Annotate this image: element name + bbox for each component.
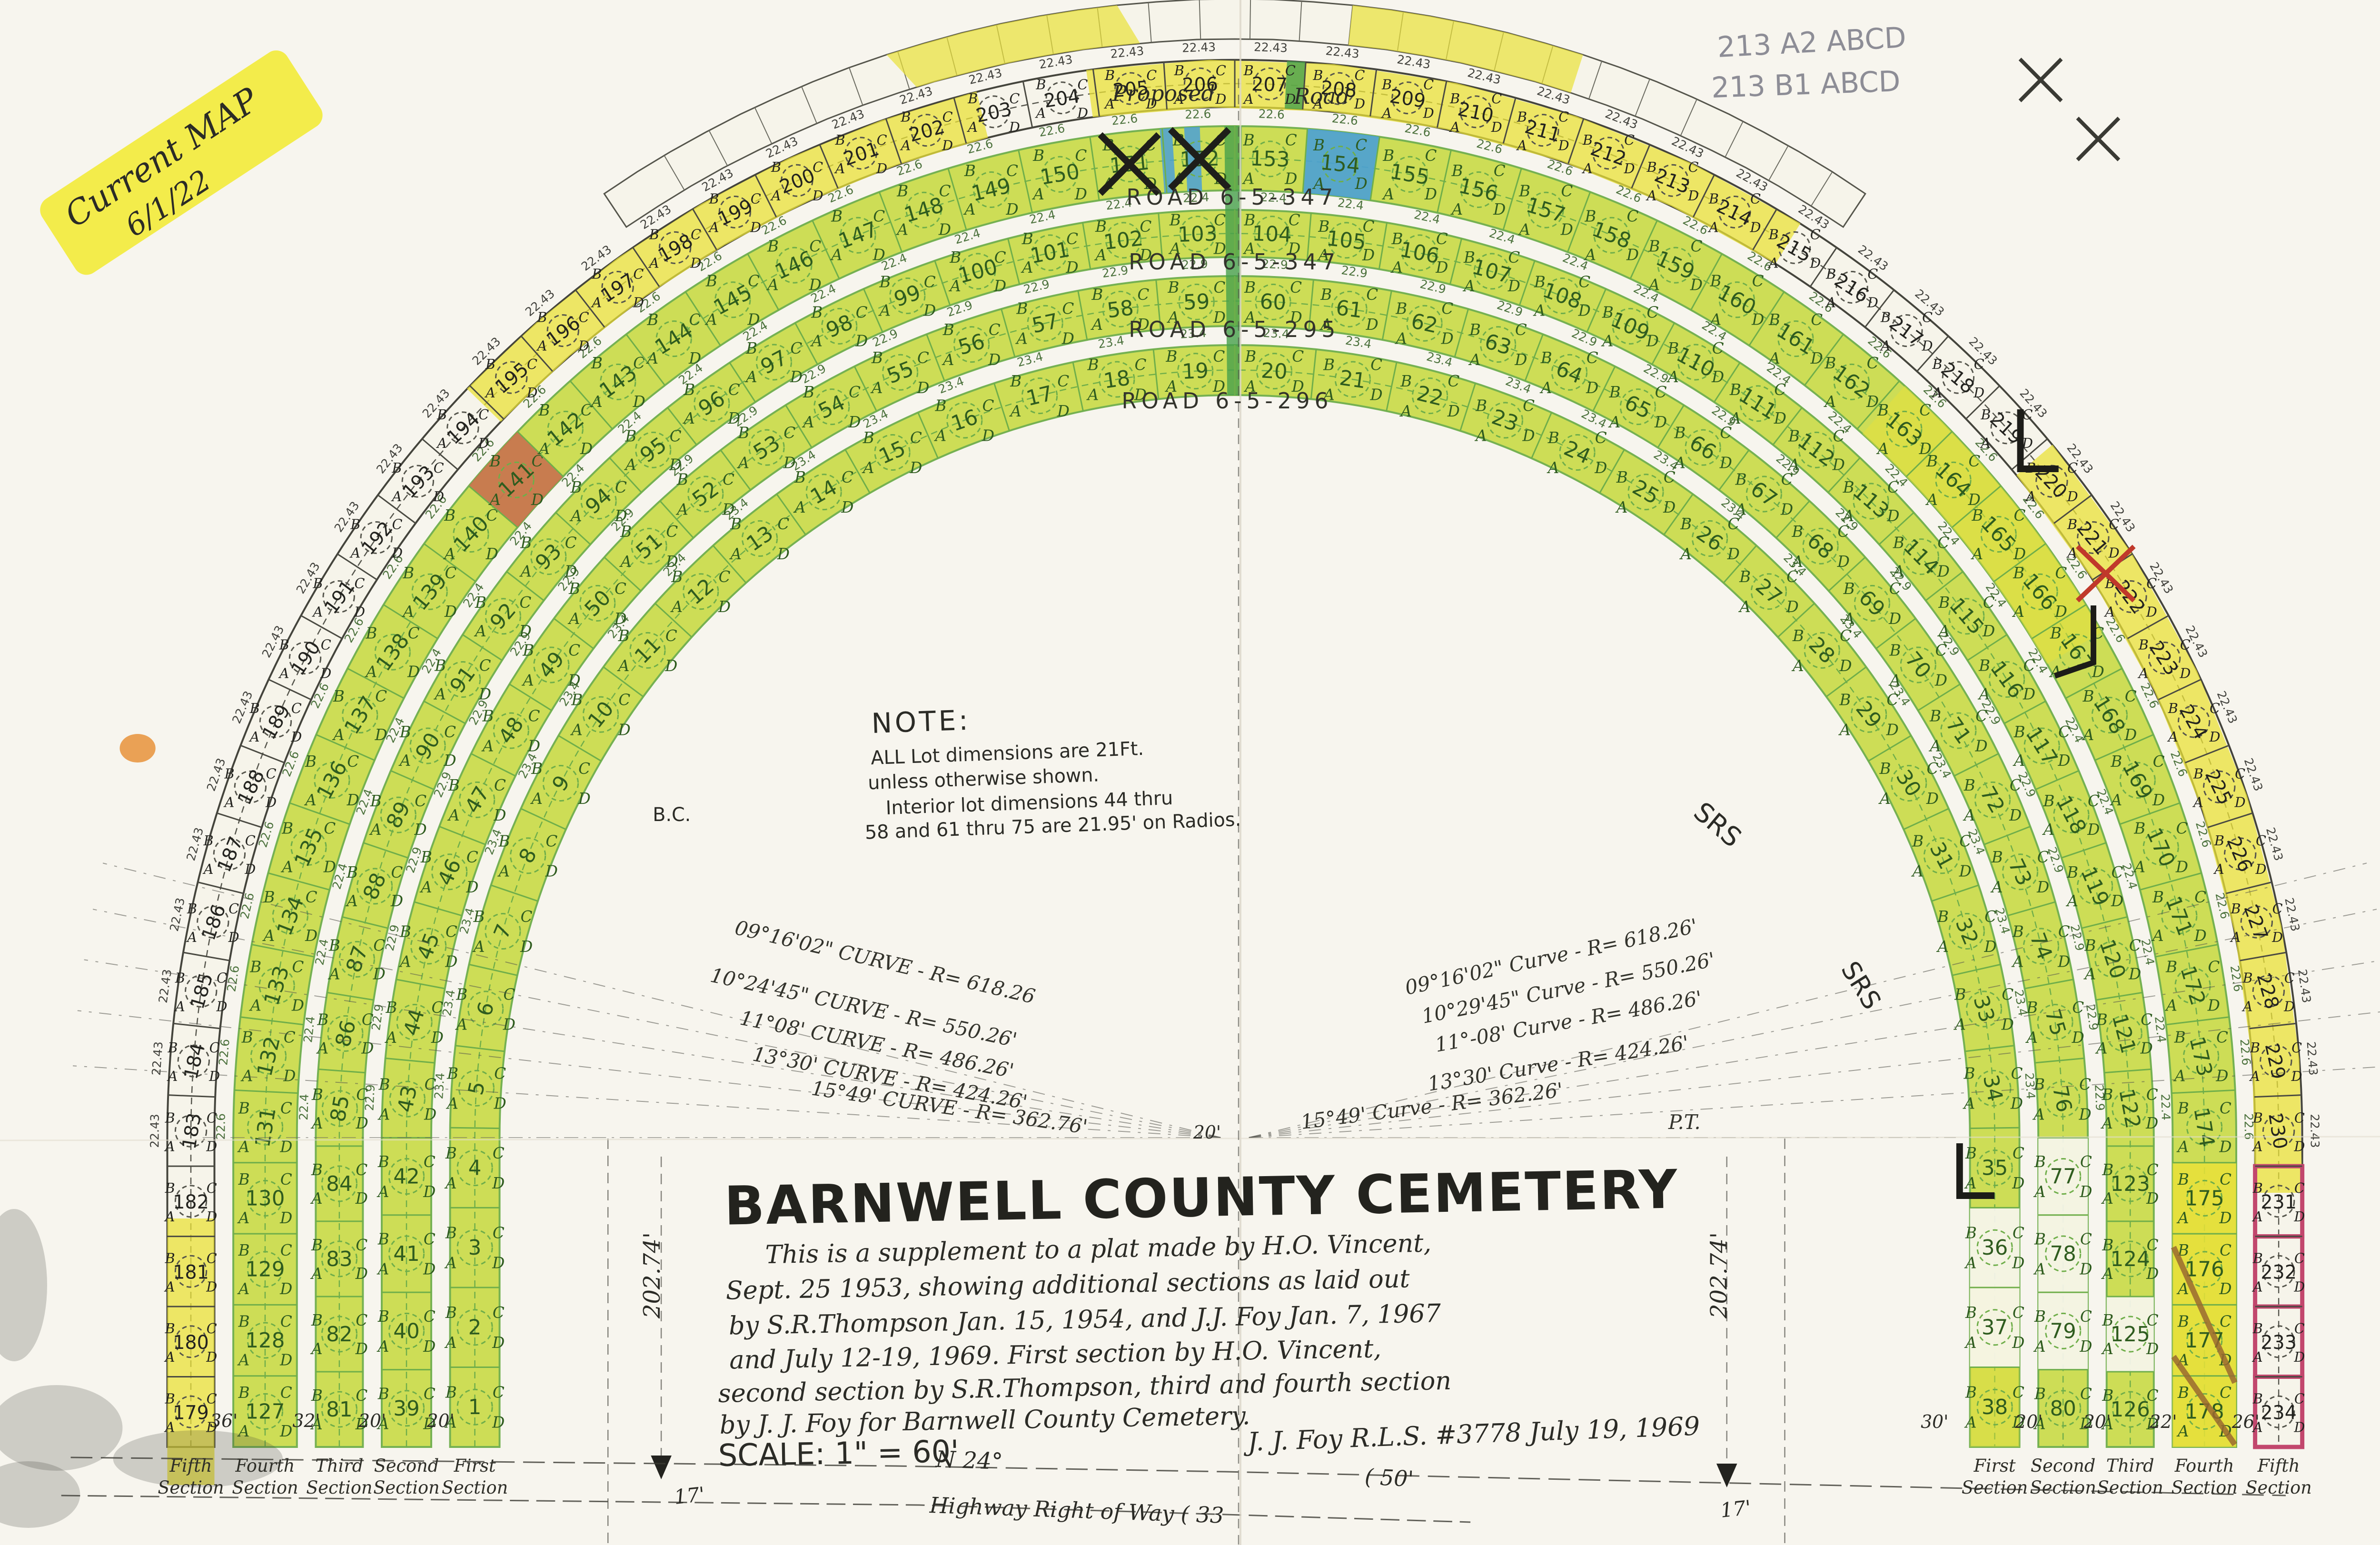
quadrant-letter: D	[492, 1414, 505, 1432]
quadrant-letter: C	[479, 656, 491, 674]
quadrant-letter: B	[311, 1387, 323, 1405]
quadrant-letter: D	[486, 545, 498, 563]
quadrant-letter: D	[1005, 200, 1018, 218]
quadrant-letter: B	[2177, 1170, 2189, 1188]
quadrant-letter: D	[2283, 998, 2295, 1014]
quadrant-letter: B	[2012, 922, 2024, 941]
quadrant-letter: D	[1983, 938, 1996, 956]
quadrant-letter: D	[1624, 160, 1635, 177]
quadrant-letter: D	[1215, 91, 1226, 107]
quadrant-letter: A	[1031, 185, 1044, 203]
quadrant-letter: B	[2242, 970, 2253, 986]
lot-20: 20	[1260, 358, 1288, 384]
quadrant-letter: C	[356, 1311, 367, 1329]
quadrant-letter: B	[1016, 300, 1028, 318]
quadrant-letter: A	[2082, 726, 2094, 744]
quadrant-letter: A	[377, 1183, 389, 1201]
quadrant-letter: A	[895, 221, 908, 239]
quadrant-letter: B	[1475, 396, 1487, 415]
lot-42: 42	[393, 1164, 419, 1188]
note-heading: NOTE:	[871, 703, 972, 740]
lot-1: 1	[468, 1395, 482, 1419]
quadrant-letter: B	[2050, 624, 2062, 643]
quadrant-letter: C	[877, 132, 887, 148]
quadrant-letter: A	[1035, 105, 1046, 121]
quadrant-letter: C	[2147, 1236, 2159, 1254]
quadrant-letter: A	[1964, 1334, 1977, 1352]
quadrant-letter: C	[2220, 1099, 2231, 1117]
quadrant-letter: B	[2101, 1086, 2113, 1104]
quadrant-letter: C	[1370, 356, 1382, 374]
quadrant-letter: A	[963, 200, 976, 218]
quadrant-letter: A	[830, 246, 843, 264]
quadrant-letter: A	[590, 393, 603, 411]
lot-233: 233	[2261, 1332, 2297, 1354]
quadrant-letter: A	[1964, 1414, 1977, 1432]
dim-202-left: 202.74'	[639, 1232, 665, 1319]
quadrant-letter: C	[2147, 1387, 2159, 1405]
quadrant-letter: D	[1975, 737, 1988, 755]
quadrant-letter: D	[1926, 790, 1939, 808]
quadrant-letter: B	[1582, 132, 1593, 148]
quadrant-letter: B	[1963, 1065, 1975, 1083]
quadrant-letter: A	[2011, 952, 2024, 971]
quadrant-letter: D	[1982, 622, 1995, 640]
quadrant-letter: B	[2177, 1384, 2189, 1402]
section-label-right: Section	[2245, 1477, 2311, 1498]
quadrant-letter: A	[1462, 277, 1475, 295]
quadrant-letter: B	[2174, 1028, 2186, 1046]
quadrant-letter: A	[1709, 310, 1722, 328]
quadrant-letter: A	[1533, 301, 1546, 319]
quadrant-letter: C	[618, 691, 630, 709]
quadrant-letter: B	[2034, 1230, 2046, 1248]
quadrant-letter: B	[1616, 468, 1628, 486]
quadrant-letter: A	[2033, 1183, 2046, 1201]
lot-125: 125	[2111, 1322, 2150, 1347]
fifty-ft-label: ( 50'	[1364, 1464, 1414, 1492]
srs-label-1: SRS	[1688, 796, 1747, 854]
title-line-2: Sept. 25 1953, showing additional sectio…	[725, 1264, 1410, 1306]
quadrant-letter: D	[1074, 185, 1087, 203]
lot-175: 175	[2185, 1186, 2224, 1210]
quadrant-letter: A	[398, 952, 411, 971]
quadrant-letter: C	[245, 832, 256, 849]
quadrant-letter: A	[708, 219, 719, 235]
quadrant-letter: C	[291, 700, 302, 716]
quadrant-letter: A	[237, 1351, 250, 1369]
quadrant-letter: A	[1707, 219, 1719, 235]
quadrant-letter: C	[1355, 136, 1367, 154]
quadrant-letter: C	[391, 863, 403, 881]
quadrant-letter: D	[2146, 604, 2157, 620]
quadrant-letter: D	[614, 610, 626, 628]
lot-232: 232	[2261, 1261, 2297, 1283]
quadrant-letter: A	[704, 310, 717, 328]
quadrant-letter: C	[994, 248, 1006, 267]
bearing-label: N 24°	[935, 1446, 1003, 1475]
quadrant-letter: A	[2249, 1068, 2260, 1084]
quadrant-letter: B	[831, 208, 843, 226]
quadrant-letter: A	[2066, 545, 2077, 561]
lot-207: 207	[1251, 73, 1288, 96]
quadrant-letter: D	[2219, 1280, 2231, 1298]
quadrant-letter: C	[1285, 131, 1297, 149]
quadrant-letter: D	[873, 246, 885, 264]
quadrant-letter: A	[834, 160, 845, 177]
quadrant-letter: C	[362, 1010, 374, 1029]
quadrant-letter: D	[2146, 1340, 2159, 1358]
quadrant-letter: B	[263, 888, 275, 906]
quadrant-letter: B	[1879, 760, 1891, 778]
quadrant-letter: C	[728, 381, 740, 399]
quadrant-letter: B	[165, 1320, 175, 1337]
quadrant-letter: D	[1558, 138, 1569, 154]
quadrant-letter: C	[545, 832, 557, 850]
quadrant-letter: D	[1809, 255, 1821, 271]
quadrant-letter: B	[402, 564, 414, 582]
lot-dimension: 22.43	[167, 896, 188, 932]
quadrant-letter: D	[2179, 665, 2191, 681]
quadrant-letter: A	[862, 459, 874, 477]
quadrant-letter: C	[424, 1230, 436, 1248]
quadrant-letter: B	[1926, 452, 1938, 470]
quadrant-letter: D	[2078, 1106, 2091, 1124]
quadrant-letter: A	[398, 752, 411, 770]
quadrant-letter: A	[2176, 1138, 2189, 1156]
quadrant-letter: B	[238, 1384, 250, 1402]
quadrant-letter: B	[1978, 656, 1990, 674]
quadrant-letter: C	[207, 1390, 217, 1406]
quadrant-letter: D	[2087, 821, 2100, 839]
quadrant-letter: A	[793, 498, 806, 516]
quadrant-letter: D	[841, 498, 853, 516]
section-label-left: First	[453, 1456, 496, 1476]
quadrant-letter: B	[1708, 190, 1719, 207]
quadrant-letter: D	[1061, 330, 1074, 348]
quadrant-letter: D	[492, 1174, 505, 1192]
quadrant-letter: C	[942, 109, 953, 125]
quadrant-letter: B	[1609, 383, 1621, 401]
quadrant-letter: A	[646, 349, 659, 367]
quadrant-letter: B	[2177, 1099, 2189, 1117]
quadrant-letter: B	[2110, 753, 2122, 771]
quadrant-letter: A	[2167, 729, 2178, 745]
quadrant-letter: D	[279, 1422, 292, 1440]
quadrant-letter: C	[813, 159, 823, 175]
section-label-left: Section	[442, 1477, 508, 1498]
quadrant-letter: C	[2013, 1224, 2024, 1242]
seventeen-ft-right: 17'	[1719, 1495, 1752, 1522]
lot-dimension: 22.43	[2263, 826, 2286, 862]
quadrant-letter: A	[521, 671, 534, 689]
quadrant-letter: B	[1320, 286, 1332, 304]
quadrant-letter: B	[238, 1312, 250, 1330]
quadrant-letter: D	[2271, 929, 2283, 945]
quadrant-letter: A	[1787, 456, 1800, 474]
quadrant-letter: D	[2079, 1260, 2092, 1278]
quadrant-letter: B	[2250, 1040, 2260, 1056]
lot-181: 181	[173, 1261, 209, 1283]
quadrant-letter: A	[802, 413, 814, 431]
quadrant-letter: D	[347, 791, 359, 809]
quadrant-letter: D	[783, 454, 796, 472]
quadrant-letter: C	[666, 523, 678, 541]
quadrant-letter: A	[1448, 119, 1460, 135]
quadrant-letter: A	[369, 821, 382, 839]
quadrant-letter: D	[1711, 368, 1724, 386]
quadrant-letter: A	[304, 791, 317, 809]
quadrant-letter: D	[578, 790, 591, 808]
lot-234: 234	[2261, 1402, 2297, 1424]
quadrant-letter: B	[1174, 62, 1184, 79]
quadrant-letter: D	[493, 806, 506, 824]
quadrant-letter: C	[2153, 753, 2165, 771]
map-title: BARNWELL COUNTY CEMETERY	[724, 1159, 1679, 1238]
quadrant-letter: A	[310, 1189, 323, 1208]
road-6-5-296: ROAD 6-5-296	[1121, 388, 1333, 414]
quadrant-letter: A	[2192, 794, 2203, 810]
quadrant-letter: B	[2034, 1153, 2046, 1171]
lot-127: 127	[245, 1399, 285, 1424]
quadrant-letter: A	[570, 721, 583, 739]
quadrant-letter: A	[519, 562, 532, 580]
quadrant-letter: D	[938, 221, 951, 239]
quadrant-letter: D	[478, 435, 489, 451]
quadrant-letter: A	[1963, 806, 1975, 824]
quadrant-letter: A	[202, 861, 214, 877]
quadrant-letter: B	[1395, 300, 1407, 318]
quadrant-letter: A	[223, 794, 235, 810]
quadrant-letter: D	[722, 500, 734, 518]
quadrant-letter: B	[2152, 888, 2164, 906]
quadrant-letter: B	[1980, 406, 1991, 423]
quadrant-letter: D	[727, 409, 740, 427]
quadrant-letter: D	[1959, 862, 1972, 880]
quadrant-letter: A	[2042, 821, 2055, 839]
quadrant-letter: D	[1491, 119, 1502, 135]
quadrant-letter: C	[1752, 272, 1764, 290]
quadrant-letter: D	[492, 1334, 505, 1352]
quadrant-letter: D	[2010, 1095, 2023, 1113]
quadrant-letter: A	[1879, 337, 1891, 354]
quadrant-letter: A	[481, 737, 494, 755]
quadrant-letter: A	[1450, 200, 1463, 218]
orange-patch	[119, 734, 155, 763]
quadrant-letter: B	[1648, 238, 1660, 256]
quadrant-letter: C	[494, 1065, 506, 1083]
quadrant-letter: A	[619, 553, 632, 571]
quadrant-letter: D	[1867, 294, 1878, 310]
quadrant-letter: B	[2066, 863, 2078, 881]
quadrant-letter: B	[445, 1224, 457, 1242]
quadrant-letter: C	[347, 753, 359, 771]
quadrant-letter: D	[2145, 1114, 2158, 1132]
quadrant-letter: A	[1399, 402, 1412, 420]
quadrant-letter: C	[1135, 356, 1147, 374]
quadrant-letter: A	[447, 806, 460, 824]
lot-104: 104	[1252, 221, 1292, 247]
section-label-right: Second	[2031, 1456, 2095, 1476]
quadrant-letter: A	[419, 878, 432, 896]
quadrant-letter: A	[472, 938, 485, 956]
quadrant-letter: A	[436, 435, 447, 451]
section-label-left: Fifth	[169, 1456, 212, 1476]
quadrant-letter: C	[519, 594, 531, 612]
quadrant-letter: A	[900, 138, 911, 154]
quadrant-letter: B	[591, 354, 603, 372]
quadrant-letter: C	[1006, 162, 1018, 180]
lot-dimension: 22.43	[1325, 44, 1360, 61]
quadrant-letter: B	[1674, 424, 1686, 442]
quadrant-letter: A	[332, 726, 345, 744]
quadrant-letter: A	[590, 294, 602, 310]
quadrant-letter: C	[2079, 1076, 2091, 1094]
quadrant-letter: B	[1382, 147, 1394, 165]
quadrant-letter: C	[356, 1161, 367, 1179]
quadrant-letter: B	[1534, 273, 1546, 291]
lot-dimension: 22.43	[1110, 44, 1144, 61]
quadrant-letter: B	[964, 162, 976, 180]
lot-4: 4	[468, 1156, 482, 1180]
quadrant-letter: B	[1680, 515, 1692, 533]
quadrant-letter: D	[633, 393, 645, 411]
lot-dimension: 22.6	[1258, 107, 1285, 121]
vertex-20ft: 20'	[1193, 1122, 1221, 1143]
quadrant-letter: B	[365, 624, 377, 643]
quadrant-letter: C	[579, 309, 589, 325]
quadrant-letter: D	[2023, 685, 2035, 703]
quadrant-letter: C	[1523, 396, 1535, 415]
quadrant-letter: A	[1964, 1174, 1977, 1192]
quadrant-letter: A	[402, 603, 415, 621]
quadrant-letter: C	[939, 182, 951, 200]
quadrant-letter: B	[1313, 136, 1325, 154]
lot-43: 43	[393, 1083, 422, 1114]
quadrant-letter: D	[520, 938, 533, 956]
quadrant-letter: A	[1825, 294, 1836, 310]
quadrant-letter: A	[1953, 1015, 1966, 1033]
quadrant-letter: A	[167, 1068, 178, 1084]
quadrant-letter: C	[2194, 888, 2206, 906]
quadrant-letter: D	[1057, 402, 1070, 420]
quadrant-letter: A	[349, 545, 361, 561]
quadrant-letter: C	[1691, 238, 1703, 256]
quadrant-letter: D	[1447, 402, 1460, 420]
quadrant-letter: C	[691, 226, 701, 242]
quadrant-letter: A	[1842, 507, 1854, 525]
lot-3: 3	[468, 1236, 482, 1260]
quadrant-letter: B	[949, 248, 961, 267]
quadrant-letter: D	[1441, 330, 1454, 348]
lot-123: 123	[2111, 1172, 2150, 1196]
quadrant-letter: A	[1911, 862, 1924, 880]
quadrant-letter: C	[373, 936, 385, 954]
section-label-right: Fourth	[2174, 1456, 2234, 1476]
quadrant-letter: D	[1663, 498, 1676, 516]
quadrant-letter: C	[1292, 347, 1304, 366]
quadrant-letter: B	[900, 109, 911, 125]
quadrant-letter: B	[489, 452, 501, 470]
quadrant-letter: C	[1289, 211, 1300, 229]
quadrant-letter: C	[280, 1384, 292, 1402]
quadrant-letter: B	[2043, 792, 2054, 810]
quadrant-letter: A	[2024, 488, 2036, 505]
quadrant-letter: B	[377, 1307, 389, 1326]
quadrant-letter: C	[615, 580, 626, 598]
quadrant-letter: C	[431, 999, 443, 1017]
lot-dimension: 22.6	[1185, 107, 1211, 121]
quadrant-letter: B	[771, 159, 781, 175]
quadrant-letter: D	[809, 276, 822, 294]
quadrant-letter: C	[2220, 1241, 2231, 1259]
quadrant-letter: D	[1687, 188, 1699, 204]
quadrant-letter: D	[2124, 726, 2137, 744]
quadrant-letter: A	[1791, 657, 1804, 675]
quadrant-letter: B	[238, 1170, 250, 1188]
quadrant-letter: A	[1608, 413, 1621, 431]
quadrant-letter: A	[1734, 500, 1747, 518]
quadrant-letter: D	[2108, 545, 2120, 561]
quadrant-letter: B	[1540, 349, 1552, 367]
quadrant-letter: B	[1929, 707, 1941, 725]
quadrant-letter: C	[280, 1312, 292, 1330]
quadrant-letter: B	[1518, 182, 1530, 200]
quadrant-letter: A	[1666, 368, 1679, 386]
quadrant-letter: C	[2013, 1144, 2024, 1162]
quadrant-letter: D	[2293, 1278, 2305, 1295]
quadrant-letter: D	[2293, 1349, 2305, 1365]
quadrant-letter: A	[1601, 332, 1614, 350]
quadrant-letter: B	[2102, 1311, 2113, 1329]
quadrant-letter: A	[280, 858, 293, 876]
lot-40: 40	[393, 1319, 419, 1343]
quadrant-letter: D	[2146, 1265, 2159, 1283]
quadrant-letter: D	[206, 1349, 217, 1365]
quadrant-letter: D	[1578, 301, 1591, 319]
quadrant-letter: B	[378, 1076, 390, 1094]
quadrant-letter: A	[248, 729, 260, 745]
quadrant-letter: C	[1216, 62, 1226, 79]
quadrant-letter: C	[1213, 278, 1225, 297]
quadrant-letter: B	[834, 132, 845, 148]
quadrant-letter: D	[1514, 351, 1527, 369]
quadrant-letter: A	[174, 998, 185, 1014]
quadrant-letter: D	[492, 1254, 505, 1272]
quadrant-letter: B	[2214, 832, 2224, 849]
quadrant-letter: B	[1035, 76, 1046, 92]
quadrant-letter: D	[374, 726, 387, 744]
quadrant-letter: B	[863, 429, 874, 447]
quadrant-letter: A	[444, 1254, 457, 1272]
quadrant-letter: C	[228, 901, 239, 917]
quadrant-letter: D	[305, 927, 317, 945]
quadrant-letter: C	[1448, 372, 1459, 390]
quadrant-letter: D	[690, 255, 701, 271]
quadrant-letter: C	[809, 238, 821, 256]
quadrant-letter: B	[1954, 985, 1966, 1003]
quadrant-letter: D	[2036, 878, 2049, 896]
quadrant-letter: C	[842, 468, 853, 486]
quadrant-letter: B	[1244, 347, 1256, 366]
quadrant-letter: C	[849, 383, 861, 401]
quadrant-letter: D	[478, 685, 491, 703]
lot-154: 154	[1319, 150, 1361, 178]
lot-dimension: 22.43	[2308, 1114, 2321, 1148]
quadrant-letter: D	[812, 188, 823, 204]
quadrant-letter: D	[423, 1260, 436, 1278]
quadrant-letter: A	[624, 456, 636, 474]
